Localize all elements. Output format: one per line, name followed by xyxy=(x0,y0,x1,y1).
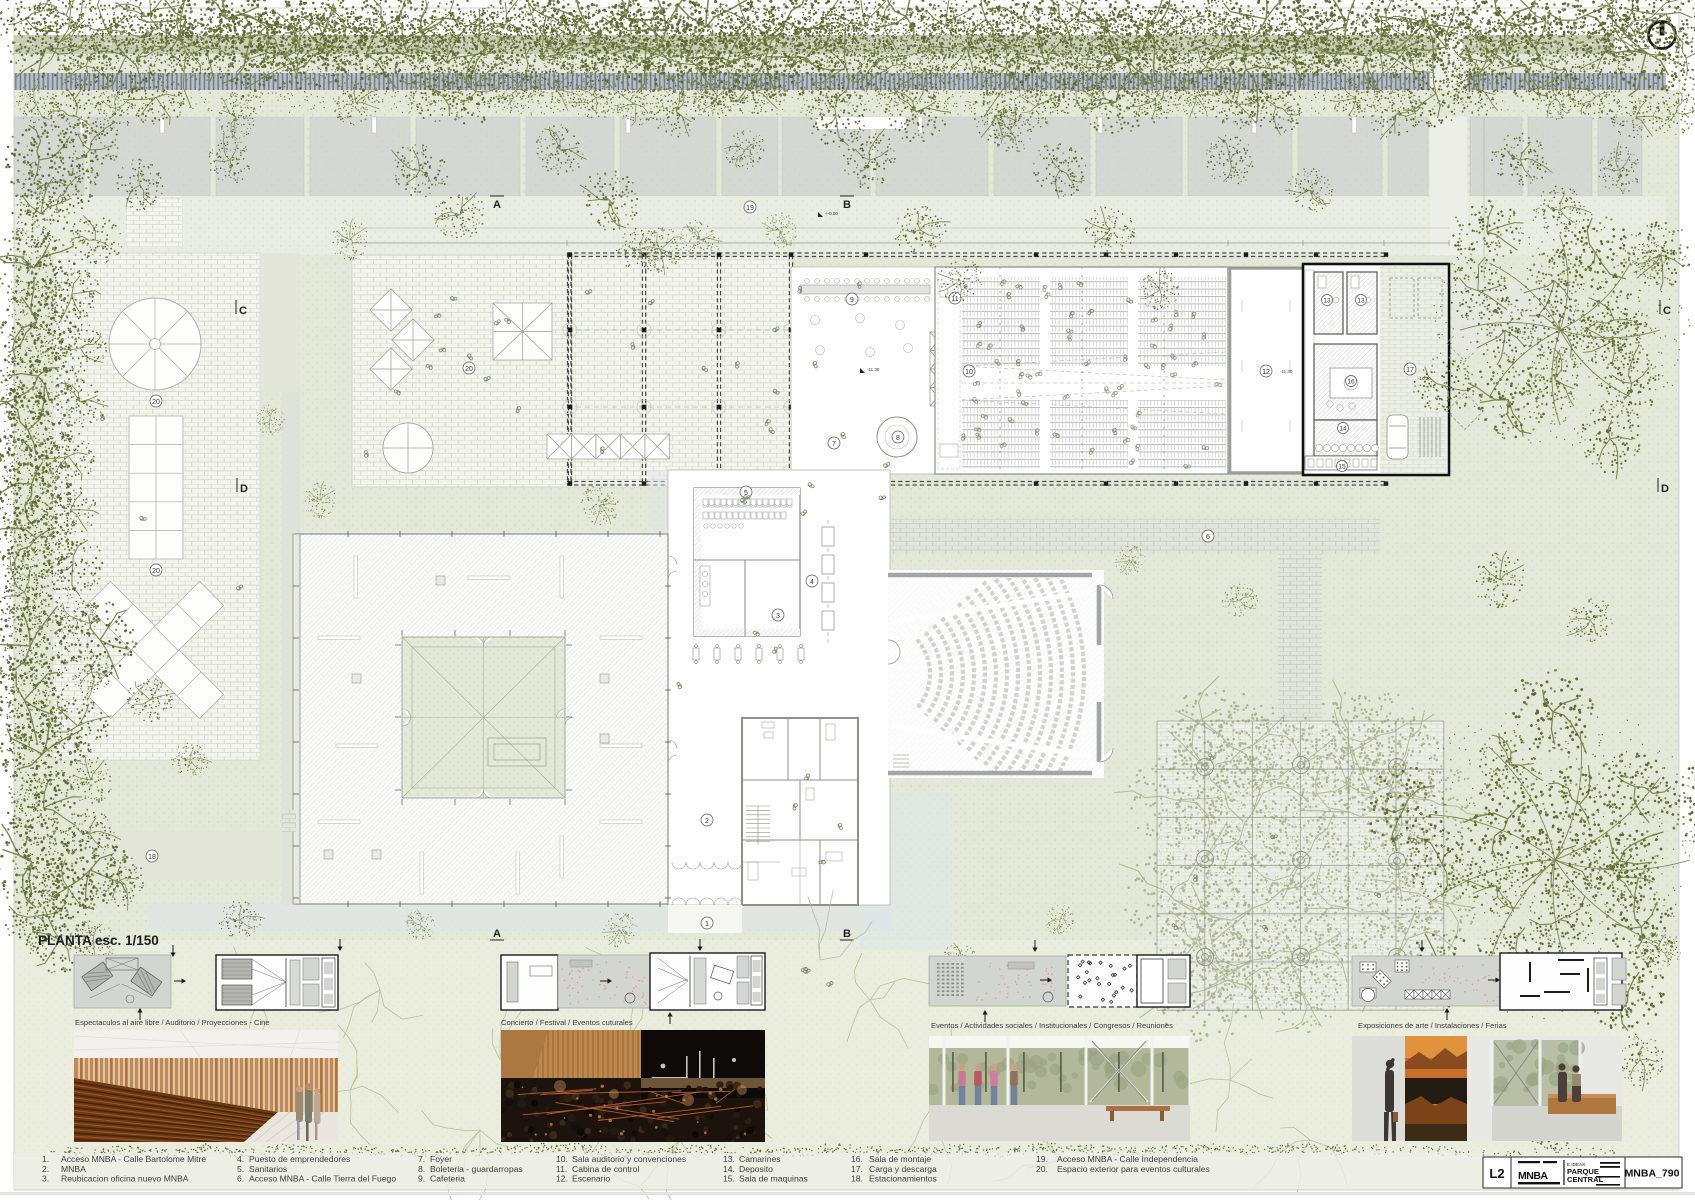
svg-text:C: C xyxy=(239,305,247,317)
svg-text:10: 10 xyxy=(965,369,973,376)
svg-text:Escenario: Escenario xyxy=(572,1174,610,1184)
svg-text:2: 2 xyxy=(705,818,709,825)
svg-text:Exposiciones de arte / Instala: Exposiciones de arte / Instalaciones / F… xyxy=(1358,1021,1507,1030)
svg-text:D: D xyxy=(1661,483,1669,495)
svg-text:19.: 19. xyxy=(1036,1154,1048,1164)
svg-text:C: C xyxy=(1663,305,1671,317)
svg-text:1: 1 xyxy=(705,921,709,928)
svg-text:9.: 9. xyxy=(418,1174,425,1184)
svg-text:11: 11 xyxy=(951,296,958,303)
svg-text:4.: 4. xyxy=(237,1154,244,1164)
svg-text:Acceso MNBA - Calle Tierra del: Acceso MNBA - Calle Tierra del Fuego xyxy=(249,1174,396,1184)
svg-text:20: 20 xyxy=(152,568,160,575)
svg-text:Reubicacion oficina nuevo MNBA: Reubicacion oficina nuevo MNBA xyxy=(61,1174,189,1184)
svg-text:8: 8 xyxy=(896,435,900,442)
svg-text:13.: 13. xyxy=(723,1154,735,1164)
svg-text:17: 17 xyxy=(1406,367,1414,374)
svg-text:Sala de montaje: Sala de montaje xyxy=(869,1154,931,1164)
svg-text:110.60: 110.60 xyxy=(1094,236,1107,241)
svg-text:5.: 5. xyxy=(237,1164,244,1174)
svg-text:MNBA_790: MNBA_790 xyxy=(1625,1168,1680,1180)
svg-text:7: 7 xyxy=(832,441,836,448)
svg-text:MNBA: MNBA xyxy=(61,1164,86,1174)
svg-text:+-0.00: +-0.00 xyxy=(825,211,838,216)
svg-text:Puesto de emprendedores: Puesto de emprendedores xyxy=(249,1154,350,1164)
svg-text:12.: 12. xyxy=(556,1174,568,1184)
svg-text:MNBA: MNBA xyxy=(1518,1170,1548,1182)
svg-text:A: A xyxy=(493,928,501,940)
svg-text:4: 4 xyxy=(810,579,814,586)
svg-text:Deposito: Deposito xyxy=(739,1164,773,1174)
svg-text:9: 9 xyxy=(850,297,854,304)
svg-text:L2: L2 xyxy=(1489,1166,1504,1181)
svg-text:20: 20 xyxy=(152,399,160,406)
svg-text:Boleteria - guardarropas: Boleteria - guardarropas xyxy=(430,1164,523,1174)
svg-text:1.: 1. xyxy=(42,1154,49,1164)
svg-text:Concierto / Festival / Eventos: Concierto / Festival / Eventos cuturales xyxy=(501,1018,633,1027)
svg-text:Foyer: Foyer xyxy=(430,1154,452,1164)
svg-text:Espacio exterior para eventos: Espacio exterior para eventos culturales xyxy=(1057,1164,1210,1174)
svg-text:16: 16 xyxy=(1347,379,1355,386)
svg-text:20.: 20. xyxy=(1036,1164,1048,1174)
svg-text:A: A xyxy=(493,199,501,211)
svg-text:15.: 15. xyxy=(723,1174,735,1184)
svg-text:Sala auditorio y convenciones: Sala auditorio y convenciones xyxy=(572,1154,686,1164)
svg-text:Eventos / Actividades sociales: Eventos / Actividades sociales / Institu… xyxy=(931,1021,1173,1030)
svg-text:6: 6 xyxy=(1206,534,1210,541)
svg-text:8.: 8. xyxy=(418,1164,425,1174)
svg-text:10.: 10. xyxy=(556,1154,568,1164)
svg-text:Sanitarios: Sanitarios xyxy=(249,1164,287,1174)
svg-text:11.: 11. xyxy=(556,1164,567,1174)
svg-text:18: 18 xyxy=(148,854,156,861)
svg-text:14.: 14. xyxy=(723,1164,735,1174)
svg-text:13: 13 xyxy=(1357,298,1365,305)
svg-text:13: 13 xyxy=(1323,298,1331,305)
svg-text:Estacionamientos: Estacionamientos xyxy=(869,1174,937,1184)
svg-text:Acceso MNBA - Calle Bartolome: Acceso MNBA - Calle Bartolome Mitre xyxy=(61,1154,206,1164)
svg-text:Cabina de control: Cabina de control xyxy=(572,1164,639,1174)
svg-text:PLANTA esc. 1/150: PLANTA esc. 1/150 xyxy=(38,933,159,948)
svg-text:16.: 16. xyxy=(851,1154,863,1164)
svg-text:3: 3 xyxy=(776,613,780,620)
svg-text:14: 14 xyxy=(1339,426,1347,433)
svg-text:12: 12 xyxy=(1262,369,1270,376)
svg-text:7.: 7. xyxy=(418,1154,425,1164)
svg-text:B: B xyxy=(843,928,851,940)
svg-text:Sala de maquinas: Sala de maquinas xyxy=(739,1174,808,1184)
svg-text:Acceso MNBA - Calle Independe: Acceso MNBA - Calle Independencia xyxy=(1057,1154,1198,1164)
svg-text:-11.30: -11.30 xyxy=(1280,369,1293,374)
svg-text:6.: 6. xyxy=(237,1174,244,1184)
svg-text:17.: 17. xyxy=(851,1164,863,1174)
svg-text:Cafeteria: Cafeteria xyxy=(430,1174,465,1184)
svg-text:Espectaculos al aire libre / A: Espectaculos al aire libre / Auditorio /… xyxy=(75,1018,270,1027)
svg-text:B: B xyxy=(843,199,851,211)
svg-text:2.: 2. xyxy=(42,1164,49,1174)
svg-text:-11.30: -11.30 xyxy=(867,367,880,372)
svg-text:19: 19 xyxy=(746,205,754,212)
svg-text:D: D xyxy=(240,483,248,495)
svg-text:20: 20 xyxy=(465,366,473,373)
svg-text:Camarines: Camarines xyxy=(739,1154,781,1164)
svg-text:3.: 3. xyxy=(42,1174,49,1184)
svg-text:18.: 18. xyxy=(851,1174,863,1184)
svg-text:Carga y descarga: Carga y descarga xyxy=(869,1164,937,1174)
svg-text:15: 15 xyxy=(1338,464,1346,471)
